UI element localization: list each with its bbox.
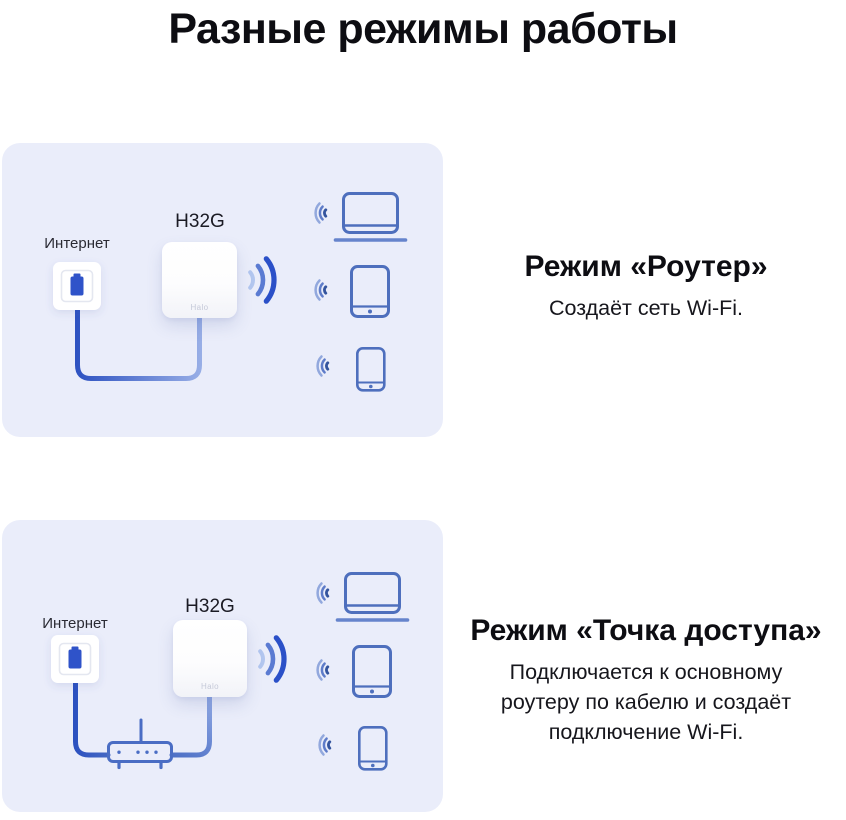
wifi-waves-icon [260, 638, 284, 680]
ethernet-cable [76, 681, 109, 755]
halo-logo-text: Halo [162, 303, 237, 312]
internet-label: Интернет [27, 235, 127, 252]
tablet-icon [354, 647, 391, 697]
mode-heading: Режим «Точка доступа» [446, 614, 846, 648]
wifi-signal-icon [320, 736, 330, 755]
h32g-device: Halo [162, 242, 237, 318]
mode-heading: Режим «Роутер» [446, 250, 846, 284]
mode-description: Подключается к основному роутеру по кабе… [491, 657, 801, 747]
mode-description: Создаёт сеть Wi-Fi. [446, 293, 846, 323]
internet-label: Интернет [25, 615, 125, 632]
h32g-label: H32G [150, 211, 250, 232]
wifi-signal-icon [318, 357, 328, 376]
h32g-device: Halo [173, 620, 247, 697]
ethernet-cable [78, 308, 200, 379]
access-point-mode-caption: Режим «Точка доступа» Подключается к осн… [446, 614, 846, 747]
wifi-signal-icon [318, 661, 328, 680]
wall-socket-icon [51, 635, 99, 683]
router-mode-caption: Режим «Роутер» Создаёт сеть Wi-Fi. [446, 250, 846, 323]
wall-socket-icon [53, 262, 101, 310]
smartphone-icon [357, 348, 384, 390]
laptop-icon [336, 194, 406, 241]
router-mode-panel: Интернет H32G Halo [2, 143, 443, 437]
h32g-label: H32G [160, 596, 260, 617]
smartphone-icon [359, 727, 386, 769]
tablet-icon [352, 267, 389, 317]
access-point-mode-panel: Интернет H32G Halo [2, 520, 443, 812]
wifi-signal-icon [316, 281, 326, 300]
wifi-signal-icon [318, 584, 328, 603]
ethernet-cable [172, 696, 210, 755]
wifi-waves-icon [250, 259, 274, 301]
halo-logo-text: Halo [173, 682, 247, 691]
router-icon [109, 720, 172, 768]
wifi-signal-icon [316, 204, 326, 223]
page-title: Разные режимы работы [0, 0, 846, 56]
laptop-icon [338, 574, 408, 621]
